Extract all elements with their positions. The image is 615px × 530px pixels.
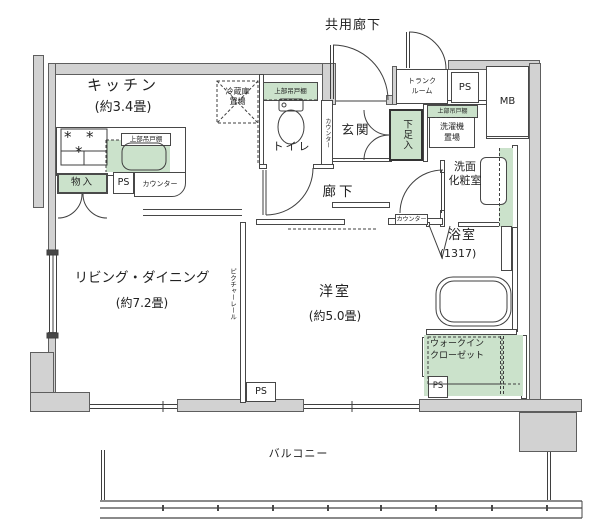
balcony-railing <box>100 501 582 518</box>
kitchen-label: キッチン <box>68 76 178 96</box>
balcony-label: バルコニー <box>256 447 341 461</box>
floor-plan: 上部吊戸棚 * * * 物入 PS カウンター 上部吊戸棚 カウンター 下足入 … <box>0 0 615 530</box>
refrigerator-space-label: 冷蔵庫 置場 <box>216 87 259 108</box>
bathroom-label: 浴室 <box>432 228 492 245</box>
kitchen-size-label: (約3.4畳) <box>68 100 178 117</box>
entrance-label: 玄関 <box>330 122 382 138</box>
western-room-label: 洋室 <box>293 283 377 301</box>
stove <box>61 129 107 165</box>
walk-in-closet-label: ウォークイン クローゼット <box>426 339 504 362</box>
western-room-size-label: (約5.0畳) <box>293 309 377 325</box>
living-dining-size-label: (約7.2畳) <box>52 296 232 312</box>
storage-door-swing <box>58 194 107 218</box>
washroom-label: 洗面 化粧室 <box>434 160 496 189</box>
balcony-partition-right <box>548 452 551 500</box>
picture-rail-label: ピクチャーレール <box>228 244 236 344</box>
trunk-room-door-swing <box>407 32 447 69</box>
toilet-door-swing <box>263 168 313 215</box>
living-dining-label: リビング・ダイニング <box>52 270 232 288</box>
common-corridor-label: 共用廊下 <box>318 18 388 35</box>
toilet-fixture <box>278 99 304 144</box>
window-west <box>47 250 58 338</box>
hallway-label: 廊下 <box>308 184 370 202</box>
window-south-ld <box>90 401 177 412</box>
entrance-door-swing <box>331 45 389 101</box>
balcony-partition-left <box>102 450 105 501</box>
toilet-label: トイレ <box>262 140 322 154</box>
balcony-railing-ticks <box>163 501 582 518</box>
window-south-western-room <box>304 401 419 412</box>
bathtub <box>436 277 511 326</box>
kitchen-sink <box>122 143 166 170</box>
bathroom-size-label: (1317) <box>428 247 488 261</box>
